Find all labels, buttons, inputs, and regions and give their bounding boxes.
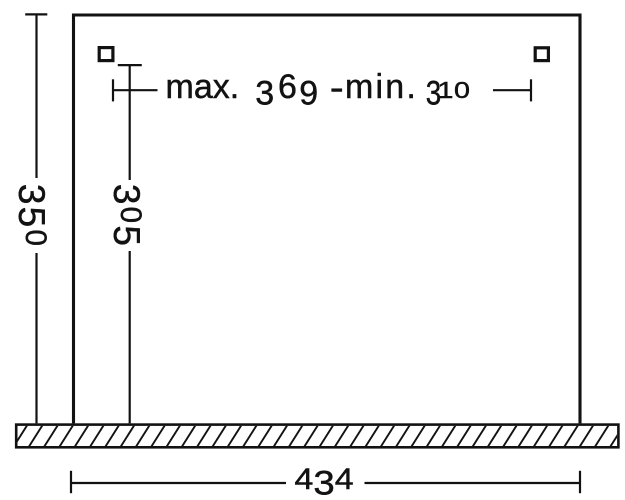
svg-text:305: 305 [106,184,147,248]
svg-text:10: 10 [438,76,471,103]
svg-text:6: 6 [278,68,297,106]
svg-text:min.: min. [345,68,418,106]
svg-text:3: 3 [255,75,274,113]
svg-text:max.: max. [166,68,240,106]
svg-text:434: 434 [295,462,354,500]
svg-text:350: 350 [11,184,52,248]
svg-text:9: 9 [299,75,318,113]
